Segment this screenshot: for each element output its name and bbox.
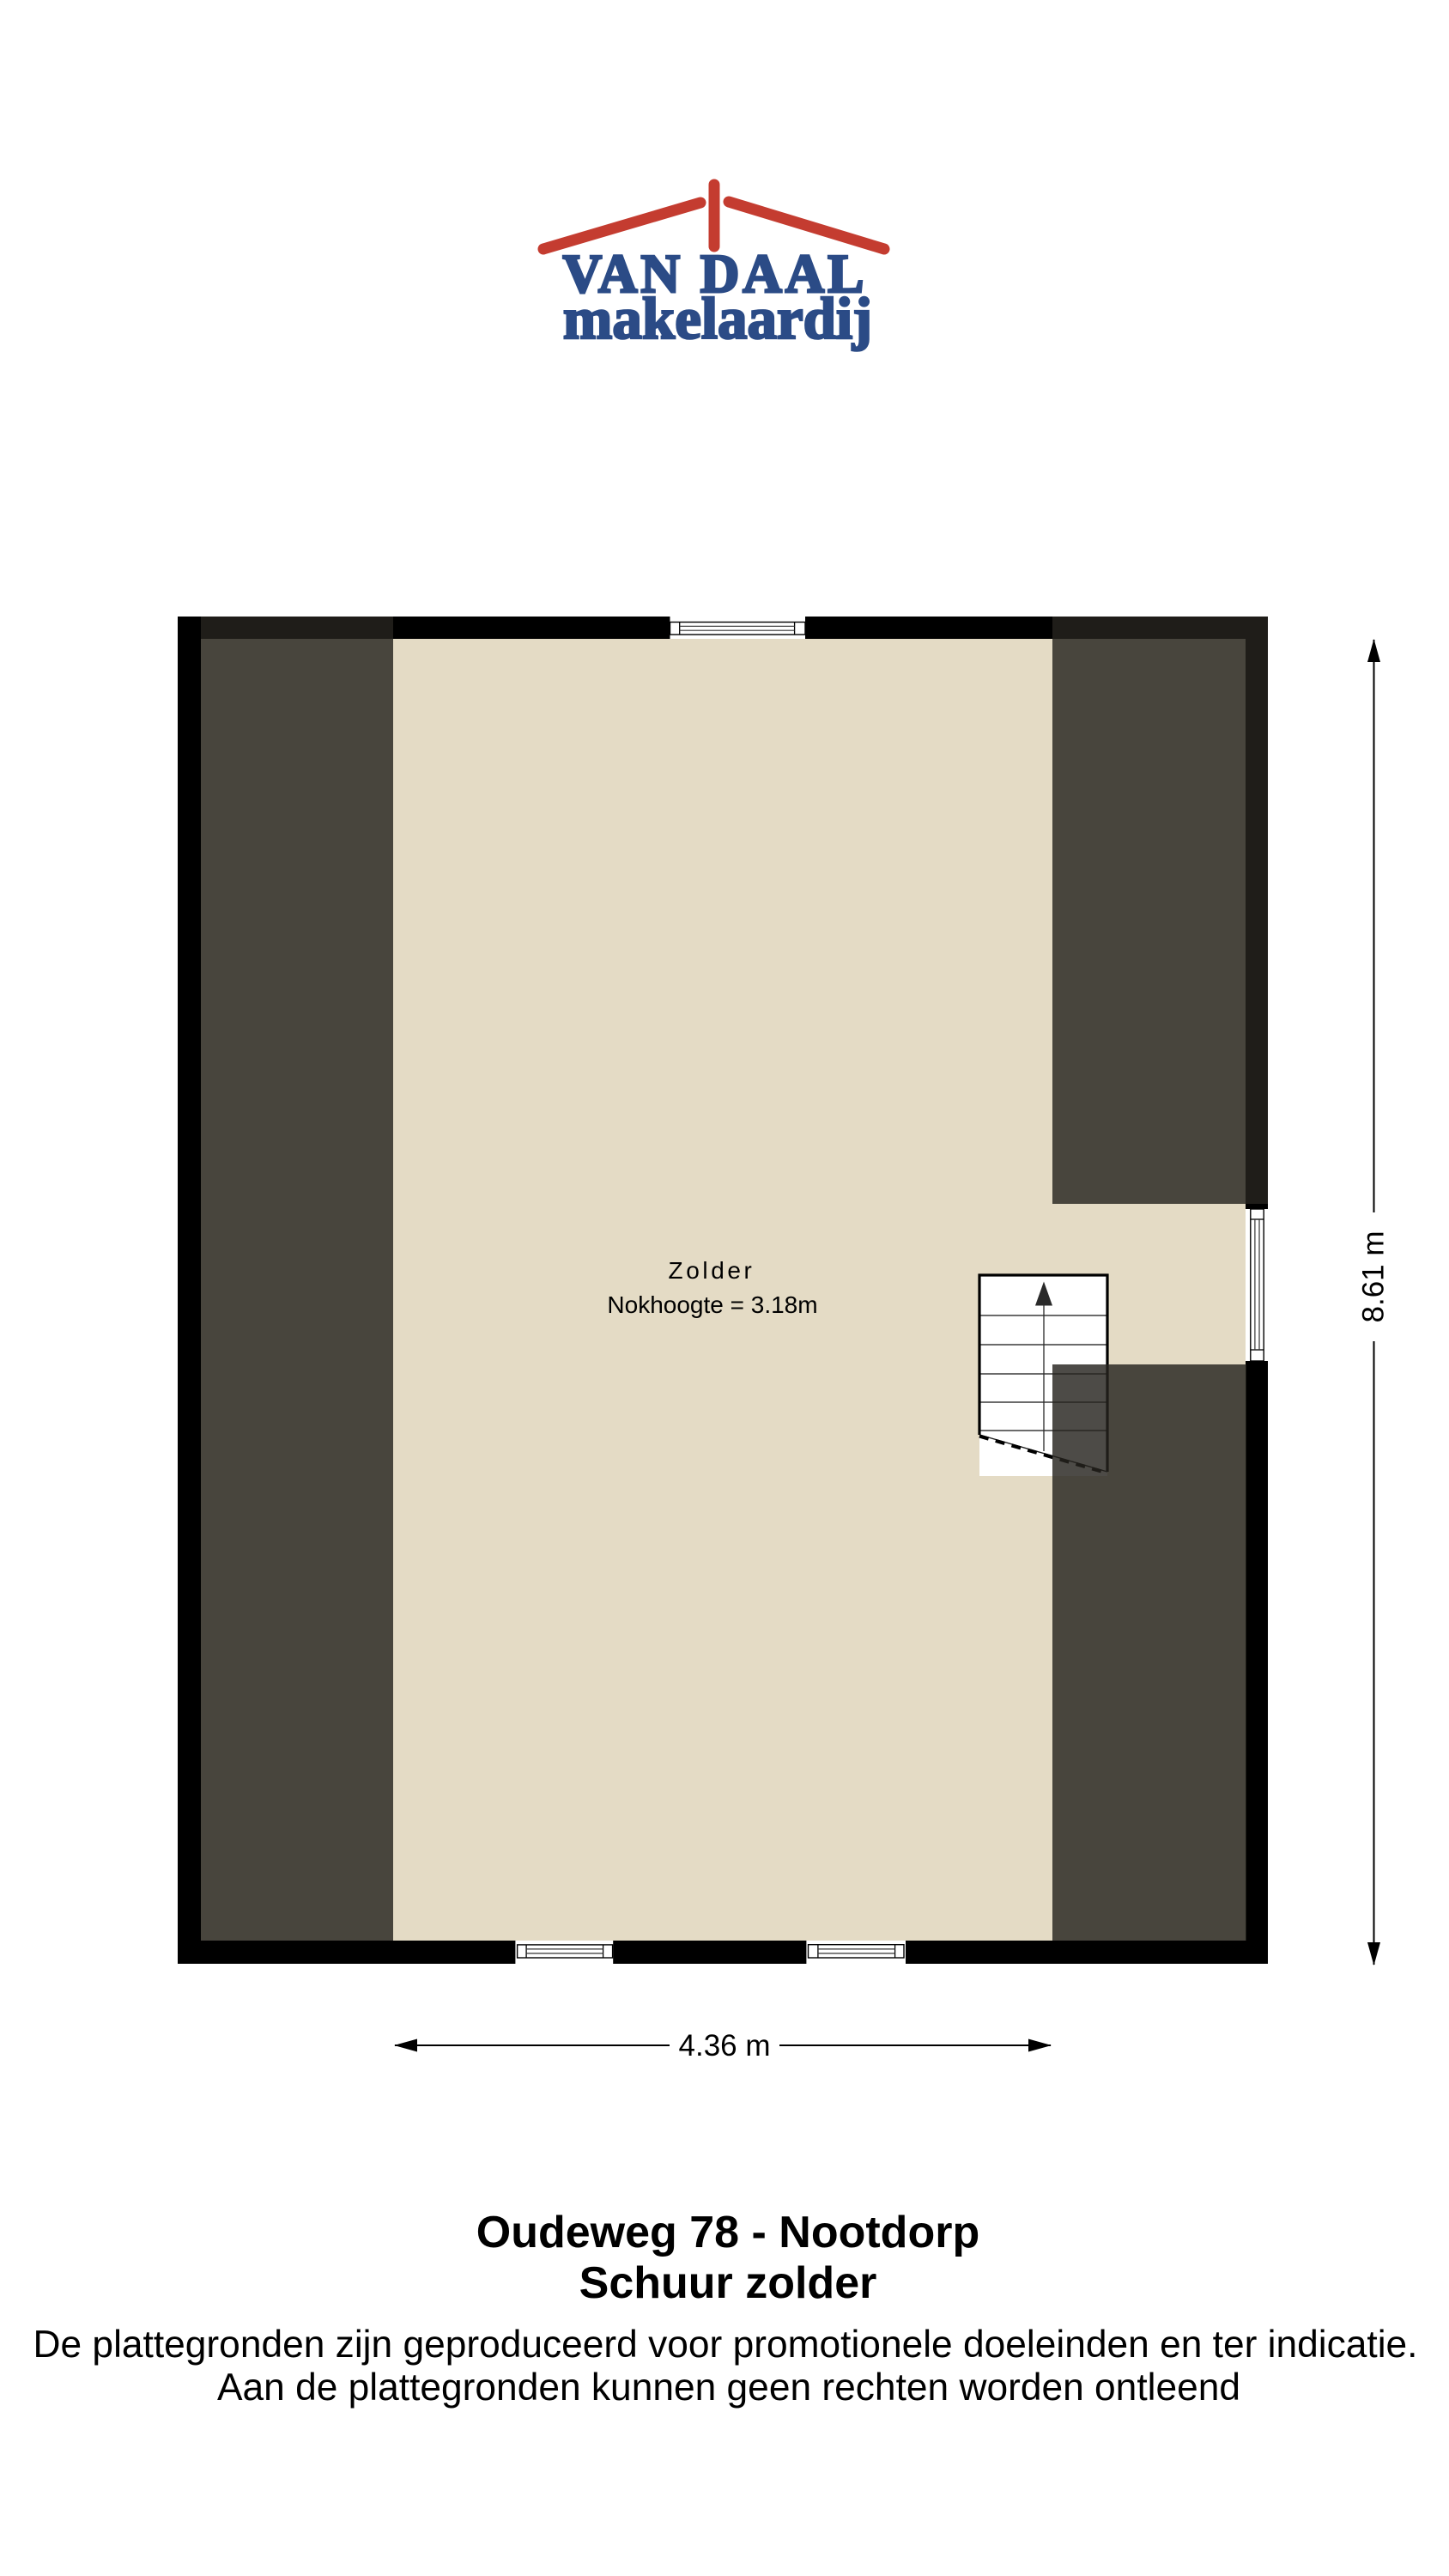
svg-text:Schuur zolder: Schuur zolder [579, 2258, 877, 2308]
svg-text:Zolder: Zolder [669, 1257, 755, 1284]
svg-text:Aan de plattegronden kunnen ge: Aan de plattegronden kunnen geen rechten… [217, 2366, 1240, 2409]
svg-text:8.61 m: 8.61 m [1357, 1231, 1391, 1323]
svg-text:De plattegronden zijn geproduc: De plattegronden zijn geproduceerd voor … [33, 2324, 1418, 2366]
svg-text:Oudeweg 78 - Nootdorp: Oudeweg 78 - Nootdorp [476, 2208, 979, 2257]
svg-text:Nokhoogte = 3.18m: Nokhoogte = 3.18m [607, 1291, 817, 1318]
svg-text:4.36 m: 4.36 m [679, 2029, 771, 2063]
svg-text:makelaardij: makelaardij [563, 286, 872, 351]
